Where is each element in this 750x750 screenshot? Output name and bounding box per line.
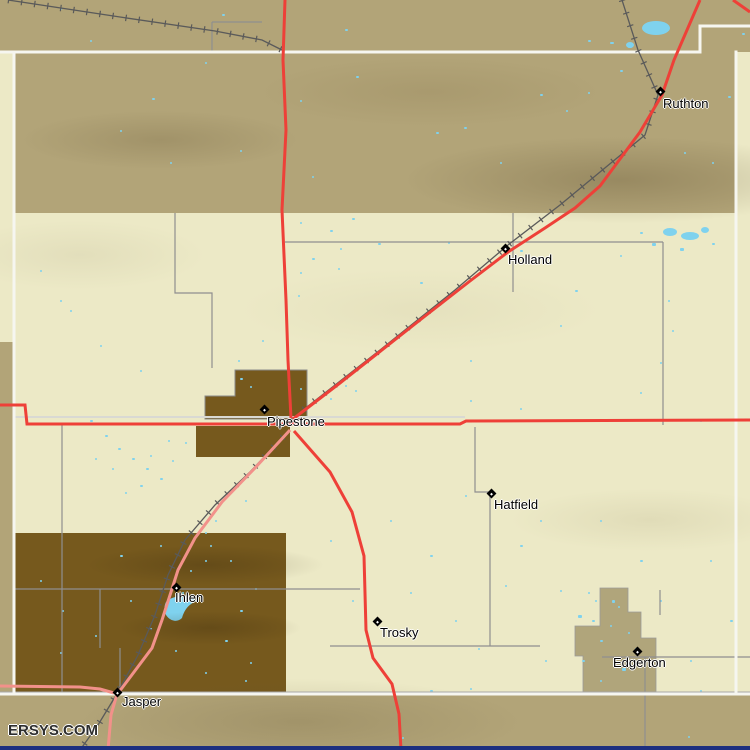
town-label: Pipestone: [267, 415, 325, 428]
town-marker: [259, 404, 269, 414]
town-marker-center: [376, 620, 379, 623]
town-label: Holland: [508, 253, 552, 266]
town-marker-layer: RuthtonHollandPipestoneHatfieldTroskyEdg…: [0, 0, 750, 750]
town-marker-center: [175, 586, 178, 589]
town-label: Trosky: [380, 626, 419, 639]
town-marker-center: [116, 691, 119, 694]
town-marker-center: [490, 492, 493, 495]
footer-bar: [0, 746, 750, 750]
town-label: Ruthton: [663, 97, 709, 110]
town-marker-center: [504, 247, 507, 250]
watermark: ERSYS.COM: [8, 722, 98, 739]
town-marker-center: [263, 408, 266, 411]
town-marker-center: [659, 90, 662, 93]
town-marker: [655, 86, 665, 96]
county-map: RuthtonHollandPipestoneHatfieldTroskyEdg…: [0, 0, 750, 750]
town-marker: [112, 687, 122, 697]
town-label: Jasper: [122, 695, 161, 708]
town-label: Edgerton: [613, 656, 666, 669]
town-label: Ihlen: [175, 591, 203, 604]
town-label: Hatfield: [494, 498, 538, 511]
town-marker-center: [636, 650, 639, 653]
